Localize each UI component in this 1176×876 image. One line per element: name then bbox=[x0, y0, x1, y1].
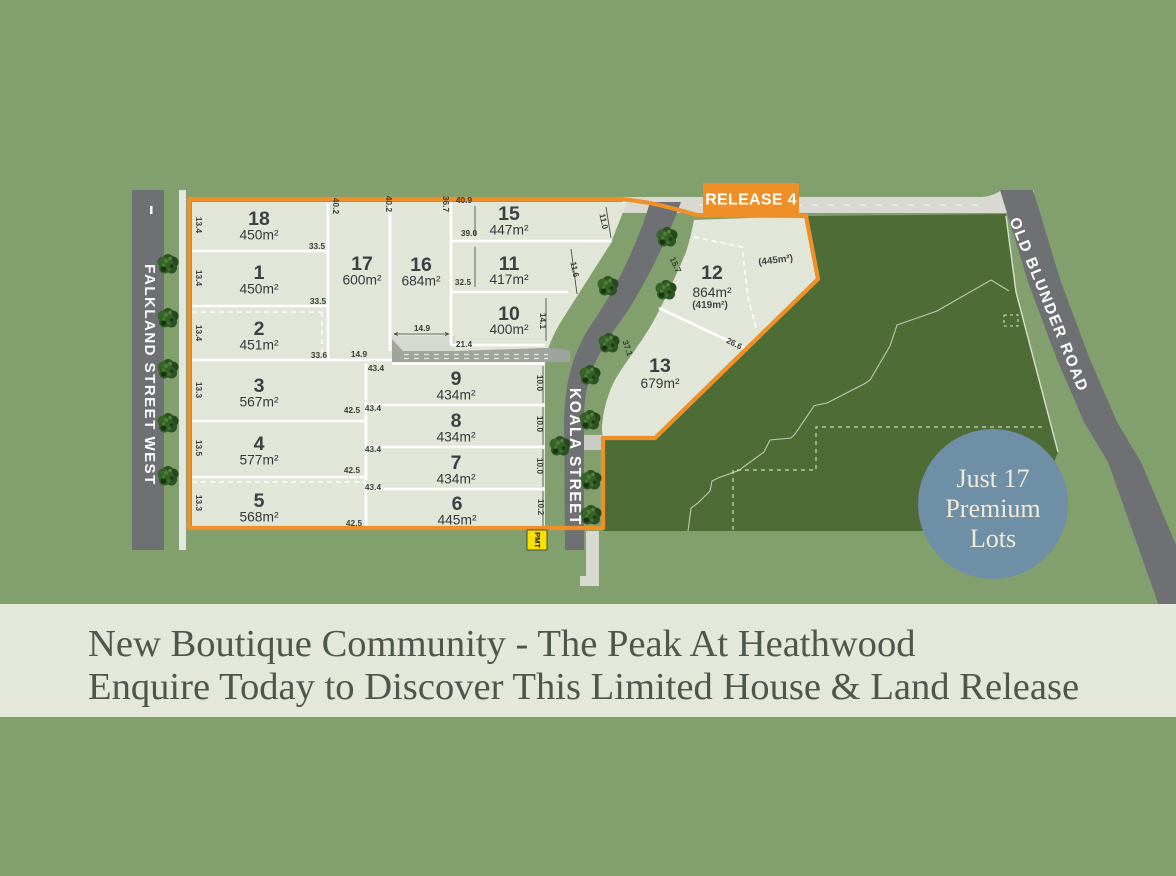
svg-text:42.5: 42.5 bbox=[344, 465, 361, 475]
svg-text:Just 17: Just 17 bbox=[957, 464, 1030, 493]
svg-text:450m²: 450m² bbox=[239, 282, 279, 297]
svg-text:400m²: 400m² bbox=[489, 322, 529, 337]
svg-text:43.4: 43.4 bbox=[365, 482, 382, 492]
svg-text:43.4: 43.4 bbox=[368, 363, 385, 373]
svg-text:600m²: 600m² bbox=[342, 273, 382, 288]
svg-text:RELEASE 4: RELEASE 4 bbox=[705, 192, 797, 209]
svg-text:10.0: 10.0 bbox=[535, 416, 545, 433]
svg-text:New Boutique Community - The P: New Boutique Community - The Peak At Hea… bbox=[88, 623, 916, 665]
svg-text:KOALA STREET: KOALA STREET bbox=[566, 388, 583, 526]
svg-text:13.4: 13.4 bbox=[194, 270, 204, 287]
svg-text:12: 12 bbox=[701, 262, 723, 284]
svg-text:10.2: 10.2 bbox=[536, 499, 546, 516]
svg-text:864m²: 864m² bbox=[692, 285, 732, 300]
svg-text:Enquire Today to Discover This: Enquire Today to Discover This Limited H… bbox=[88, 666, 1079, 708]
svg-text:13.3: 13.3 bbox=[194, 382, 204, 399]
svg-text:14.9: 14.9 bbox=[414, 323, 431, 333]
svg-text:684m²: 684m² bbox=[401, 274, 441, 289]
svg-text:40.2: 40.2 bbox=[384, 196, 394, 213]
svg-text:40.2: 40.2 bbox=[331, 198, 341, 215]
svg-text:14.1: 14.1 bbox=[538, 313, 548, 330]
svg-text:434m²: 434m² bbox=[436, 430, 476, 445]
svg-text:13.4: 13.4 bbox=[194, 325, 204, 342]
svg-text:33.5: 33.5 bbox=[310, 296, 327, 306]
svg-text:(419m²): (419m²) bbox=[692, 300, 728, 311]
svg-text:10.0: 10.0 bbox=[535, 458, 545, 475]
svg-text:Premium: Premium bbox=[945, 494, 1040, 523]
svg-text:36.7: 36.7 bbox=[441, 196, 451, 213]
svg-text:567m²: 567m² bbox=[239, 395, 279, 410]
svg-text:451m²: 451m² bbox=[239, 338, 279, 353]
svg-text:32.5: 32.5 bbox=[455, 277, 472, 287]
svg-text:14.9: 14.9 bbox=[351, 349, 368, 359]
svg-text:13.5: 13.5 bbox=[194, 440, 204, 457]
svg-text:434m²: 434m² bbox=[436, 388, 476, 403]
svg-text:577m²: 577m² bbox=[239, 453, 279, 468]
svg-text:40.9: 40.9 bbox=[456, 195, 473, 205]
svg-text:13.3: 13.3 bbox=[194, 495, 204, 512]
svg-text:568m²: 568m² bbox=[239, 510, 279, 525]
svg-text:447m²: 447m² bbox=[489, 223, 529, 238]
svg-text:13.4: 13.4 bbox=[194, 217, 204, 234]
svg-text:434m²: 434m² bbox=[436, 472, 476, 487]
svg-text:43.4: 43.4 bbox=[365, 444, 382, 454]
svg-text:33.5: 33.5 bbox=[309, 241, 326, 251]
svg-text:43.4: 43.4 bbox=[365, 403, 382, 413]
svg-text:PMT: PMT bbox=[533, 532, 542, 548]
svg-text:13: 13 bbox=[649, 355, 671, 377]
svg-text:21.4: 21.4 bbox=[456, 339, 473, 349]
svg-text:417m²: 417m² bbox=[489, 272, 529, 287]
svg-text:33.6: 33.6 bbox=[311, 350, 328, 360]
svg-text:42.5: 42.5 bbox=[344, 405, 361, 415]
svg-text:679m²: 679m² bbox=[640, 376, 680, 391]
svg-text:450m²: 450m² bbox=[239, 228, 279, 243]
svg-text:10.0: 10.0 bbox=[535, 375, 545, 392]
svg-text:FALKLAND STREET WEST: FALKLAND STREET WEST bbox=[141, 264, 158, 486]
svg-text:Lots: Lots bbox=[970, 524, 1016, 553]
svg-text:445m²: 445m² bbox=[437, 513, 477, 528]
svg-text:42.5: 42.5 bbox=[346, 518, 363, 528]
